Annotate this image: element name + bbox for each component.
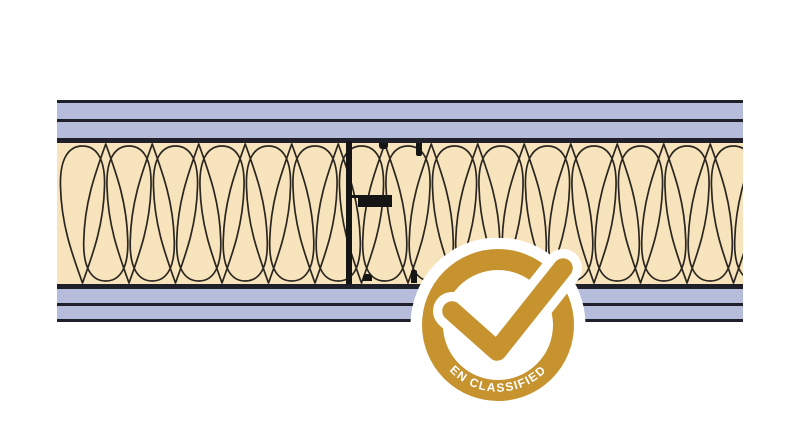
plasterboard-sheet [57, 306, 743, 319]
stud-top-lip [379, 143, 388, 149]
plasterboard-layer-bottom [57, 284, 743, 322]
plasterboard-sheet [57, 103, 743, 119]
insulation-hatch [57, 143, 743, 284]
wall-assembly-cross-section [57, 100, 743, 322]
plasterboard-layer-top [57, 100, 743, 143]
mineral-wool-insulation [57, 143, 743, 284]
stud-web [346, 141, 352, 285]
construction-diagram: EN CLASSIFIED [0, 0, 800, 425]
stud-top-flange-return [416, 143, 422, 156]
stud-splice-bar [358, 198, 392, 207]
board-edge-line [57, 319, 743, 322]
plasterboard-sheet [57, 289, 743, 303]
plasterboard-sheet [57, 122, 743, 138]
stud-bottom-lip [363, 274, 372, 281]
en-classified-badge: EN CLASSIFIED [405, 238, 595, 418]
